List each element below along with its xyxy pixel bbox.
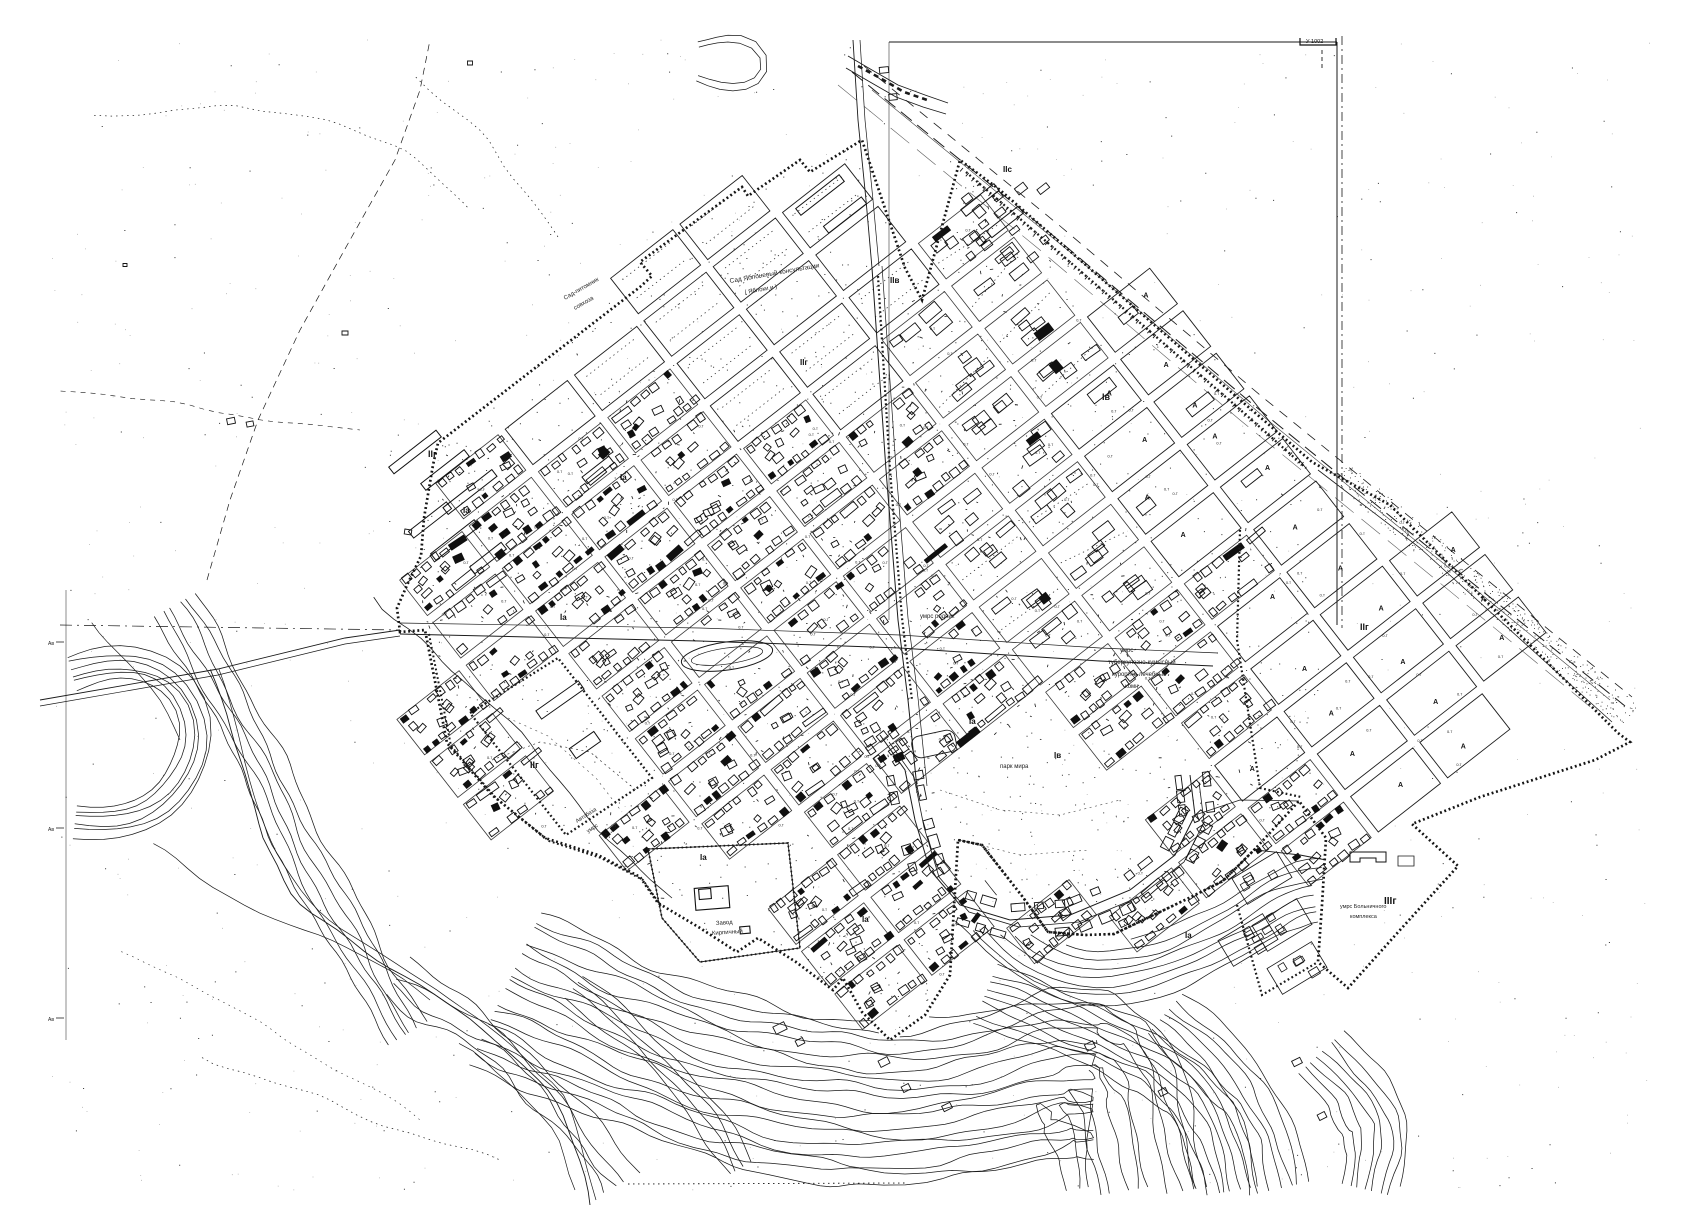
svg-text:о.т: о.т xyxy=(864,754,869,759)
svg-text:о.т: о.т xyxy=(869,645,874,650)
svg-text:А: А xyxy=(1145,495,1150,502)
svg-text:о.т: о.т xyxy=(1290,719,1295,724)
svg-text:о.т: о.т xyxy=(809,432,814,437)
svg-text:А: А xyxy=(1181,532,1186,539)
svg-text:Ав: Ав xyxy=(48,641,54,647)
svg-text:о.т: о.т xyxy=(1360,531,1365,536)
svg-text:о.т: о.т xyxy=(1145,474,1150,479)
svg-text:о.т: о.т xyxy=(930,326,935,331)
svg-text:о.т: о.т xyxy=(1037,395,1042,400)
svg-text:о.т: о.т xyxy=(628,556,633,561)
svg-text:о.т: о.т xyxy=(1447,729,1452,734)
svg-text:А: А xyxy=(1302,666,1307,673)
svg-text:Iв: Iв xyxy=(1102,392,1111,402)
svg-text:о.т: о.т xyxy=(534,525,539,530)
svg-text:о.т: о.т xyxy=(723,581,728,586)
svg-text:о.т: о.т xyxy=(940,646,945,651)
svg-text:Iа: Iа xyxy=(969,717,976,726)
svg-text:о.т: о.т xyxy=(1498,654,1503,659)
svg-text:о.т: о.т xyxy=(1035,608,1040,613)
svg-text:о.т: о.т xyxy=(1138,871,1143,876)
svg-text:о.т: о.т xyxy=(900,423,905,428)
svg-text:о.т: о.т xyxy=(698,423,703,428)
svg-text:о.т: о.т xyxy=(708,598,713,603)
svg-text:курортно-лечебные: курортно-лечебные xyxy=(1112,672,1167,678)
svg-text:о.т: о.т xyxy=(750,753,755,758)
svg-text:о.т: о.т xyxy=(965,228,970,233)
svg-text:умрс: умрс xyxy=(1120,648,1133,654)
svg-text:А: А xyxy=(1142,437,1147,444)
svg-text:А: А xyxy=(1270,594,1275,601)
svg-text:о.т: о.т xyxy=(939,972,944,977)
svg-text:комплекса: комплекса xyxy=(1350,914,1378,920)
svg-text:о.т: о.т xyxy=(702,606,707,611)
svg-text:о.т: о.т xyxy=(850,692,855,697)
svg-text:о.т: о.т xyxy=(702,556,707,561)
svg-text:о.т: о.т xyxy=(1090,472,1095,477)
svg-text:А: А xyxy=(1293,525,1298,532)
svg-text:о.т: о.т xyxy=(1159,618,1164,623)
svg-text:о.т: о.т xyxy=(854,769,859,774)
svg-text:о.т: о.т xyxy=(989,471,994,476)
svg-text:о.т: о.т xyxy=(1317,507,1322,512)
svg-text:о.т: о.т xyxy=(805,534,810,539)
svg-text:о.т: о.т xyxy=(541,824,546,829)
svg-text:Iв: Iв xyxy=(1054,751,1061,760)
svg-text:о.т: о.т xyxy=(1076,317,1081,322)
svg-text:о.т: о.т xyxy=(1399,520,1404,525)
svg-text:У 1002: У 1002 xyxy=(1306,39,1323,45)
svg-text:о.т: о.т xyxy=(947,351,952,356)
svg-text:о.т: о.т xyxy=(1211,715,1216,720)
svg-text:IIс: IIс xyxy=(1003,165,1012,174)
svg-text:Ав: Ав xyxy=(48,1017,54,1023)
svg-text:о.т: о.т xyxy=(1297,571,1302,576)
svg-text:о.т: о.т xyxy=(1320,593,1325,598)
svg-text:А: А xyxy=(1250,766,1255,773)
svg-text:о.т: о.т xyxy=(1214,391,1219,396)
svg-text:о.т: о.т xyxy=(1400,571,1405,576)
svg-text:о.т: о.т xyxy=(1457,692,1462,697)
svg-text:комн: комн xyxy=(1125,684,1138,690)
svg-text:туберкулезно-кумысный: туберкулезно-кумысный xyxy=(1108,659,1176,666)
svg-text:о.т: о.т xyxy=(1345,679,1350,684)
svg-text:о.т: о.т xyxy=(875,763,880,768)
svg-text:о.т: о.т xyxy=(1259,817,1264,822)
svg-text:о.т: о.т xyxy=(1444,564,1449,569)
svg-text:Iа: Iа xyxy=(620,473,627,482)
svg-text:о.т: о.т xyxy=(463,560,468,565)
svg-text:о.т: о.т xyxy=(1077,619,1082,624)
svg-text:о.т: о.т xyxy=(544,632,549,637)
svg-text:парк мира: парк мира xyxy=(1000,764,1029,770)
svg-text:о.т: о.т xyxy=(1472,612,1477,617)
svg-text:о.т: о.т xyxy=(952,922,957,927)
svg-text:о.т: о.т xyxy=(832,791,837,796)
svg-text:о.т: о.т xyxy=(697,826,702,831)
svg-text:о.т: о.т xyxy=(1164,487,1169,492)
svg-text:о.т: о.т xyxy=(1048,442,1053,447)
svg-text:о.т: о.т xyxy=(778,822,783,827)
svg-text:о.т: о.т xyxy=(488,536,493,541)
svg-text:о.т: о.т xyxy=(914,920,919,925)
svg-text:о.т: о.т xyxy=(823,617,828,622)
svg-text:о.т: о.т xyxy=(1031,358,1036,363)
svg-text:о.т: о.т xyxy=(939,737,944,742)
svg-text:о.т: о.т xyxy=(1286,580,1291,585)
svg-text:о.т: о.т xyxy=(813,426,818,431)
svg-text:о.т: о.т xyxy=(887,455,892,460)
svg-text:А: А xyxy=(1400,659,1405,666)
svg-text:о.т: о.т xyxy=(923,568,928,573)
svg-text:о.т: о.т xyxy=(442,611,447,616)
svg-text:о.т: о.т xyxy=(855,559,860,564)
svg-text:о.т: о.т xyxy=(669,751,674,756)
svg-text:о.т: о.т xyxy=(923,425,928,430)
svg-text:А: А xyxy=(1461,744,1466,751)
svg-text:А: А xyxy=(1164,362,1169,369)
svg-text:о.т: о.т xyxy=(611,823,616,828)
svg-text:о.т: о.т xyxy=(1368,674,1373,679)
svg-text:о.т: о.т xyxy=(1107,453,1112,458)
svg-text:А: А xyxy=(1265,465,1270,472)
svg-text:А: А xyxy=(1192,403,1197,410)
svg-text:о.т: о.т xyxy=(829,439,834,444)
svg-text:о.т: о.т xyxy=(582,595,587,600)
svg-text:А: А xyxy=(1499,635,1504,642)
svg-text:о.т: о.т xyxy=(1336,705,1341,710)
svg-text:умрс Больничного: умрс Больничного xyxy=(1340,904,1386,910)
svg-text:о.т: о.т xyxy=(838,679,843,684)
svg-text:о.т: о.т xyxy=(1093,482,1098,487)
svg-text:о.т: о.т xyxy=(645,720,650,725)
svg-text:о.т: о.т xyxy=(578,436,583,441)
svg-text:о.т: о.т xyxy=(604,515,609,520)
svg-text:о.т: о.т xyxy=(1035,450,1040,455)
svg-text:о.т: о.т xyxy=(907,729,912,734)
svg-text:IIг: IIг xyxy=(1360,622,1369,632)
svg-text:Завод: Завод xyxy=(716,920,734,927)
svg-text:о.т: о.т xyxy=(1165,632,1170,637)
svg-text:о.т: о.т xyxy=(729,665,734,670)
svg-text:о.т: о.т xyxy=(818,974,823,979)
svg-text:о.т: о.т xyxy=(896,502,901,507)
svg-text:о.т: о.т xyxy=(1216,440,1221,445)
svg-text:о.т: о.т xyxy=(479,487,484,492)
svg-text:о.т: о.т xyxy=(550,604,555,609)
svg-text:А: А xyxy=(1433,699,1438,706)
svg-text:о.т: о.т xyxy=(953,661,958,666)
svg-text:о.т: о.т xyxy=(1297,744,1302,749)
svg-text:о.т: о.т xyxy=(882,560,887,565)
svg-text:о.т: о.т xyxy=(509,553,514,558)
svg-text:Ав: Ав xyxy=(48,827,54,833)
svg-text:о.т: о.т xyxy=(705,750,710,755)
svg-text:о.т: о.т xyxy=(1145,590,1150,595)
svg-text:о.т: о.т xyxy=(632,825,637,830)
svg-text:Iа: Iа xyxy=(560,613,567,622)
svg-text:о.т: о.т xyxy=(1064,497,1069,502)
svg-text:IIв: IIв xyxy=(890,276,899,285)
svg-text:о.т: о.т xyxy=(963,442,968,447)
svg-text:о.т: о.т xyxy=(1366,727,1371,732)
svg-text:А: А xyxy=(1398,782,1403,789)
svg-text:IIг: IIг xyxy=(800,358,808,367)
svg-text:о.т: о.т xyxy=(1456,762,1461,767)
svg-text:IIг: IIг xyxy=(530,760,539,770)
svg-text:о.т: о.т xyxy=(557,469,562,474)
svg-text:о.т: о.т xyxy=(822,907,827,912)
svg-text:о.т: о.т xyxy=(487,755,492,760)
svg-text:о.т: о.т xyxy=(1172,491,1177,496)
svg-text:IIг: IIг xyxy=(428,449,437,459)
svg-text:о.т: о.т xyxy=(758,518,763,523)
svg-text:о.т: о.т xyxy=(848,826,853,831)
svg-text:о.т: о.т xyxy=(582,536,587,541)
svg-text:о.т: о.т xyxy=(1111,409,1116,414)
svg-text:о.т: о.т xyxy=(1207,418,1212,423)
svg-text:А: А xyxy=(1329,711,1334,718)
svg-text:о.т: о.т xyxy=(884,843,889,848)
svg-text:о.т: о.т xyxy=(501,599,506,604)
svg-text:о.т: о.т xyxy=(810,631,815,636)
svg-text:о.т: о.т xyxy=(931,573,936,578)
svg-text:о.т: о.т xyxy=(1054,604,1059,609)
svg-text:о.т: о.т xyxy=(923,563,928,568)
svg-text:о.т: о.т xyxy=(568,471,573,476)
svg-text:о.т: о.т xyxy=(672,497,677,502)
svg-text:Iа: Iа xyxy=(463,506,470,515)
svg-text:о.т: о.т xyxy=(738,625,743,630)
svg-text:о.т: о.т xyxy=(1045,633,1050,638)
svg-text:о.т: о.т xyxy=(1417,738,1422,743)
svg-text:о.т: о.т xyxy=(1416,672,1421,677)
svg-text:о.т: о.т xyxy=(806,580,811,585)
svg-text:о.т: о.т xyxy=(695,582,700,587)
svg-text:о.т: о.т xyxy=(1382,633,1387,638)
svg-text:А: А xyxy=(1350,751,1355,758)
svg-text:о.т: о.т xyxy=(1128,408,1133,413)
svg-text:о.т: о.т xyxy=(572,566,577,571)
svg-text:умрс родник: умрс родник xyxy=(920,614,955,620)
svg-text:о.т: о.т xyxy=(854,799,859,804)
svg-text:о.т: о.т xyxy=(1011,596,1016,601)
svg-text:о.т: о.т xyxy=(977,537,982,542)
svg-text:Iа: Iа xyxy=(862,915,869,924)
svg-text:А: А xyxy=(1379,605,1384,612)
svg-text:о.т: о.т xyxy=(1191,691,1196,696)
svg-text:Iа: Iа xyxy=(700,853,707,862)
svg-text:Iа: Iа xyxy=(1185,931,1192,940)
